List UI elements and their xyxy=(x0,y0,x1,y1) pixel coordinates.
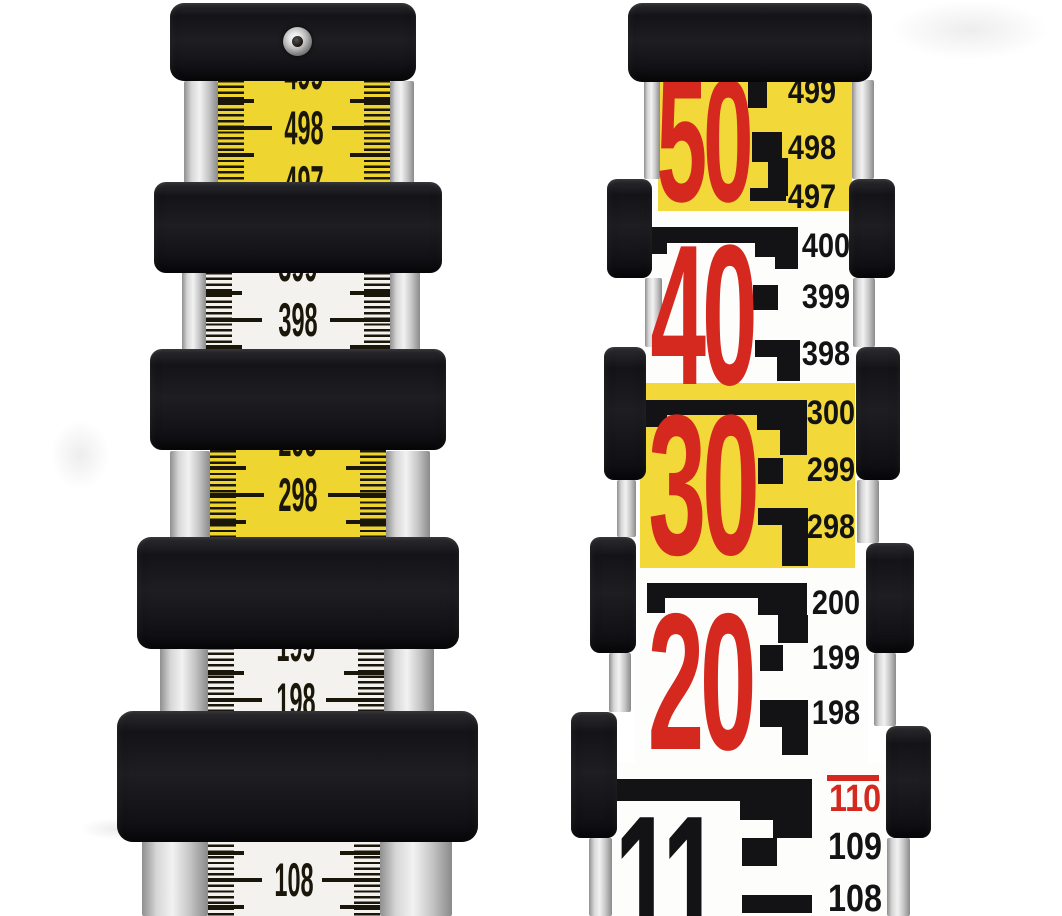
cm-dash xyxy=(208,698,262,702)
tape-section: 499 498 497 xyxy=(218,80,390,183)
rod-cap xyxy=(628,3,872,82)
tape-number: 298 xyxy=(263,478,333,512)
section-clamp xyxy=(117,711,478,842)
rod-rail xyxy=(852,80,874,179)
half-cm-dash xyxy=(208,905,244,909)
rod-rail xyxy=(609,653,631,712)
scale-number: 199 xyxy=(795,643,877,673)
tape-number: 399 xyxy=(263,272,333,282)
half-cm-dash xyxy=(206,291,242,295)
cm-dash xyxy=(326,698,384,702)
tick-marks-right xyxy=(364,80,390,183)
half-cm-dash xyxy=(350,291,390,295)
e-pattern-block xyxy=(740,801,812,820)
scale-number: 200 xyxy=(795,588,877,618)
grade-rod-product-photo: 499 498 497 399 398 299 xyxy=(0,0,1062,916)
half-cm-dash xyxy=(218,153,254,157)
tape-number: 108 xyxy=(259,863,329,897)
cm-dash xyxy=(218,126,272,130)
smudge xyxy=(50,420,110,490)
section-clamp xyxy=(571,712,617,838)
rod-rail xyxy=(617,480,636,537)
screw-hole xyxy=(292,36,303,47)
e-pattern-block xyxy=(773,820,812,838)
section-clamp xyxy=(856,347,900,480)
half-cm-dash xyxy=(346,520,386,524)
rod-rail xyxy=(170,451,210,540)
half-cm-dash xyxy=(208,671,244,675)
e-pattern-block xyxy=(742,838,777,866)
scale-number: 109 xyxy=(814,831,896,863)
tape-section: 199 198 xyxy=(208,647,384,712)
cm-dash xyxy=(210,493,264,497)
cm-dash xyxy=(208,878,262,882)
cm-dash xyxy=(332,126,390,130)
e-pattern-block xyxy=(760,645,783,671)
half-cm-dash xyxy=(210,520,246,524)
scale-number: 298 xyxy=(790,512,872,542)
tape-number: 198 xyxy=(261,683,331,712)
section-clamp xyxy=(137,537,459,649)
rod-rail xyxy=(160,646,208,714)
section-clamp xyxy=(604,347,646,480)
scale-number: 108 xyxy=(814,883,896,915)
cm-dash xyxy=(322,878,380,882)
cap-screw xyxy=(283,27,312,56)
rod-rail xyxy=(390,271,420,352)
half-cm-dash xyxy=(344,671,384,675)
rod-rail xyxy=(384,646,434,714)
rod-rail xyxy=(380,838,452,916)
tape-number: 499 xyxy=(269,80,339,90)
tape-number: 199 xyxy=(261,647,331,662)
tape-number: 299 xyxy=(263,450,333,457)
cm-dash xyxy=(206,318,262,322)
e-pattern-block xyxy=(780,430,807,455)
cm-dash xyxy=(328,493,386,497)
tape-number: 498 xyxy=(269,111,339,145)
rod-rail xyxy=(142,838,208,916)
rod-rail xyxy=(184,81,218,185)
section-clamp xyxy=(849,179,895,278)
tape-number: 398 xyxy=(263,303,333,337)
rod-rail xyxy=(874,653,896,726)
half-cm-dash xyxy=(210,466,246,470)
section-clamp xyxy=(886,726,931,838)
scale-number: 110 xyxy=(814,783,896,815)
half-cm-dash xyxy=(218,99,254,103)
e-pattern-block xyxy=(778,615,808,643)
big-decimeter-number: 30 xyxy=(645,386,759,586)
e-pattern-block xyxy=(758,458,783,484)
half-cm-dash xyxy=(340,905,380,909)
big-decimeter-number: 20 xyxy=(643,585,757,780)
section-clamp xyxy=(866,543,914,653)
rod-rail xyxy=(386,451,430,540)
smudge xyxy=(890,0,1050,60)
tick-marks-right xyxy=(358,647,384,712)
scale-number: 398 xyxy=(785,339,867,369)
e-pattern-block xyxy=(742,895,812,913)
tape-section: 399 398 xyxy=(206,272,390,350)
tape-section: 109 108 xyxy=(208,839,380,916)
tick-marks-left xyxy=(218,80,244,183)
e-pattern-block xyxy=(782,727,808,755)
scale-number: 498 xyxy=(771,133,853,163)
half-cm-dash xyxy=(350,153,390,157)
tick-marks-left xyxy=(206,272,232,350)
section-clamp xyxy=(607,179,652,278)
cm-dash xyxy=(330,318,390,322)
big-decimeter-number: 11 xyxy=(603,788,726,916)
rod-rail xyxy=(182,271,206,352)
section-clamp xyxy=(590,537,636,653)
section-clamp xyxy=(150,349,446,450)
tick-marks-right xyxy=(364,272,390,350)
tick-marks-left xyxy=(208,647,234,712)
half-cm-dash xyxy=(208,851,244,855)
half-cm-dash xyxy=(340,851,380,855)
scale-number: 497 xyxy=(771,182,853,212)
tape-section: 299 298 xyxy=(210,450,386,538)
scale-number: 399 xyxy=(785,282,867,312)
tape-number: 497 xyxy=(269,166,339,183)
rod-rail xyxy=(390,81,414,185)
section-clamp xyxy=(154,182,442,273)
scale-number: 198 xyxy=(795,698,877,728)
rod-cap xyxy=(170,3,416,81)
half-cm-dash xyxy=(350,99,390,103)
half-cm-dash xyxy=(346,466,386,470)
